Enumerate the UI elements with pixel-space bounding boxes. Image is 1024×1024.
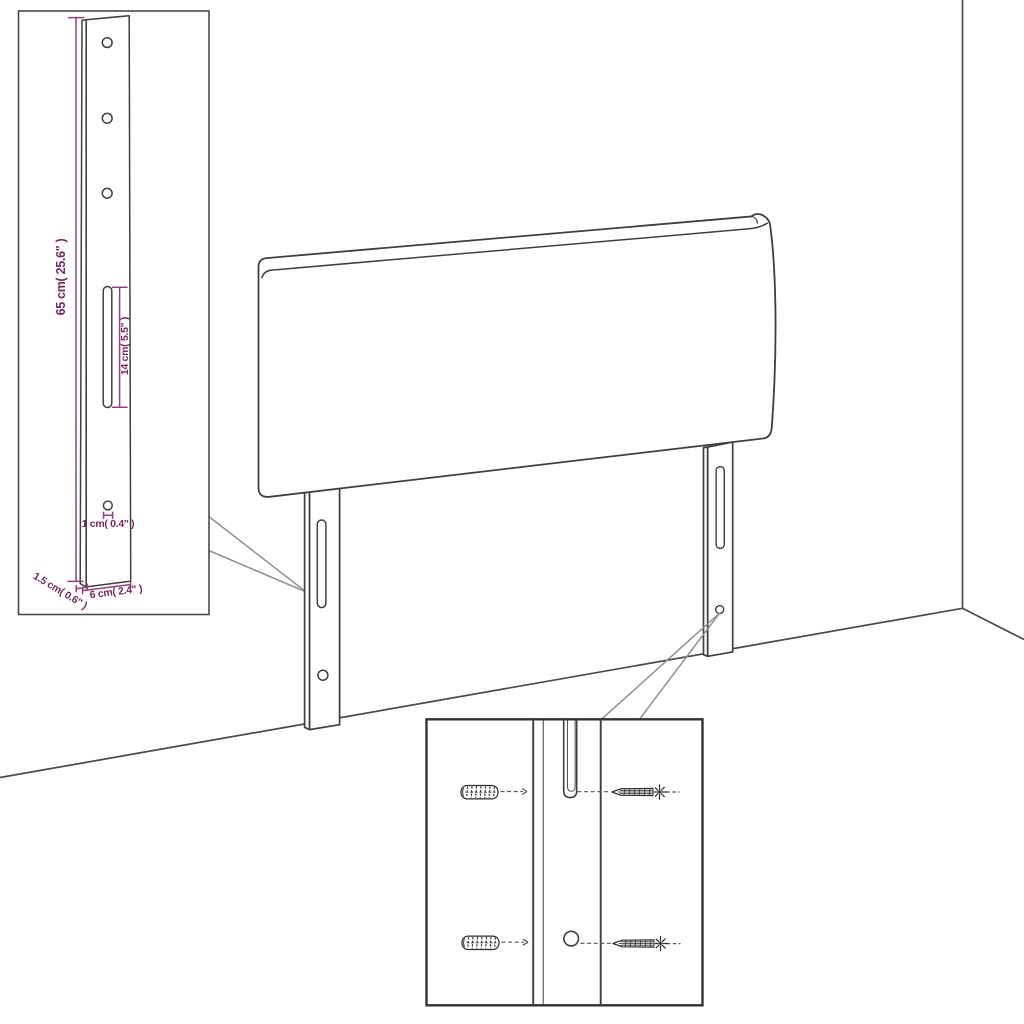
right-leg-slot xyxy=(716,467,724,549)
diagram-canvas: 65 cm( 25.6" ) 14 cm( 5.5" ) 1 cm( 0.4" … xyxy=(0,0,1024,1024)
headboard xyxy=(259,214,776,497)
left-callout-leaders xyxy=(209,517,305,592)
line-art xyxy=(0,0,1024,1024)
floor-line-right xyxy=(963,608,1024,639)
left-leg xyxy=(305,488,340,729)
hole-dimension-label: 1 cm( 0.4" ) xyxy=(82,518,135,530)
left-leg-slot xyxy=(317,520,326,608)
hardware-detail-inset xyxy=(427,719,703,1005)
height-dimension-label: 65 cm( 25.6" ) xyxy=(54,239,68,316)
slot-dimension-label: 14 cm( 5.5" ) xyxy=(119,317,131,375)
headboard-outline xyxy=(259,214,776,497)
right-callout-leaders xyxy=(602,613,720,719)
left-leg-hole xyxy=(318,670,328,680)
right-leg-hole xyxy=(716,606,724,614)
